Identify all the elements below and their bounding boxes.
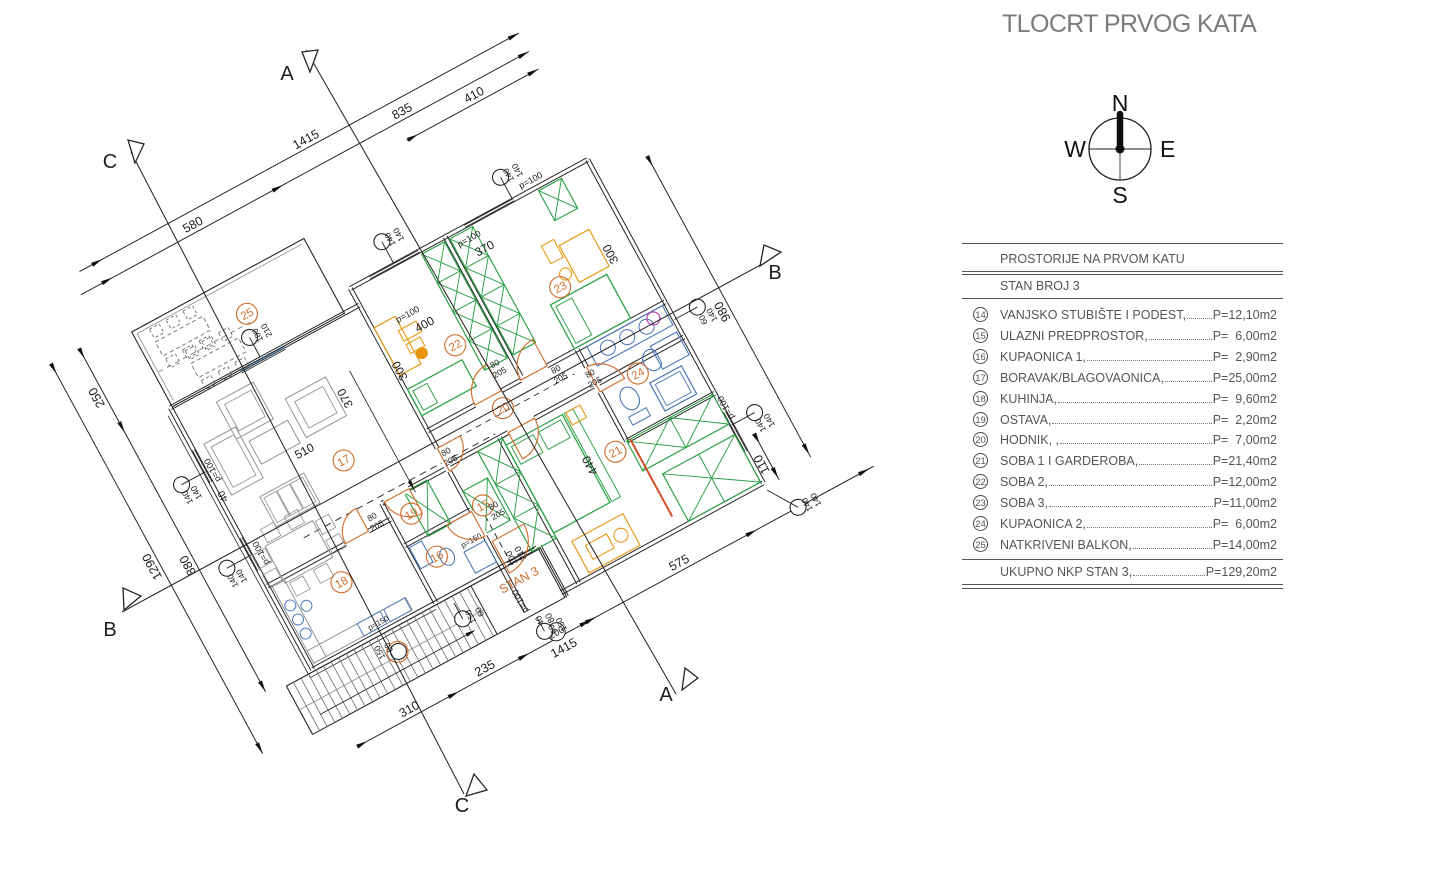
svg-text:C: C [455, 795, 469, 817]
svg-text:A: A [280, 63, 294, 85]
svg-text:S: S [1112, 182, 1127, 208]
svg-text:A: A [659, 684, 673, 706]
svg-text:580: 580 [180, 214, 205, 236]
svg-text:18: 18 [333, 575, 350, 592]
svg-text:E: E [1160, 136, 1175, 162]
svg-text:17: 17 [336, 453, 353, 470]
svg-text:21: 21 [607, 444, 624, 461]
svg-text:400: 400 [412, 313, 437, 335]
svg-text:575: 575 [667, 552, 692, 574]
svg-text:B: B [768, 262, 781, 284]
svg-text:p=150: p=150 [459, 531, 484, 550]
svg-text:110: 110 [751, 452, 773, 476]
svg-text:22: 22 [447, 338, 464, 355]
svg-text:23: 23 [552, 280, 569, 297]
svg-text:880: 880 [177, 553, 199, 578]
svg-text:p=100: p=100 [715, 394, 736, 421]
svg-text:510: 510 [292, 440, 317, 462]
svg-text:310: 310 [397, 698, 422, 720]
svg-text:300: 300 [599, 242, 621, 267]
svg-text:24: 24 [630, 366, 647, 383]
svg-text:835: 835 [390, 100, 415, 122]
svg-text:300: 300 [389, 358, 411, 383]
svg-text:410: 410 [462, 84, 487, 106]
svg-text:235: 235 [472, 657, 497, 679]
svg-text:p=100: p=100 [202, 457, 223, 484]
svg-text:19: 19 [403, 506, 420, 523]
svg-text:250: 250 [86, 385, 108, 410]
svg-text:370: 370 [334, 386, 356, 411]
svg-text:p=100: p=100 [510, 588, 531, 615]
svg-text:B: B [103, 619, 116, 641]
svg-text:N: N [1112, 90, 1129, 116]
svg-text:25: 25 [239, 306, 256, 323]
svg-text:370: 370 [472, 237, 497, 259]
svg-text:W: W [1064, 136, 1086, 162]
svg-text:C: C [103, 151, 117, 173]
svg-text:440: 440 [579, 453, 601, 478]
